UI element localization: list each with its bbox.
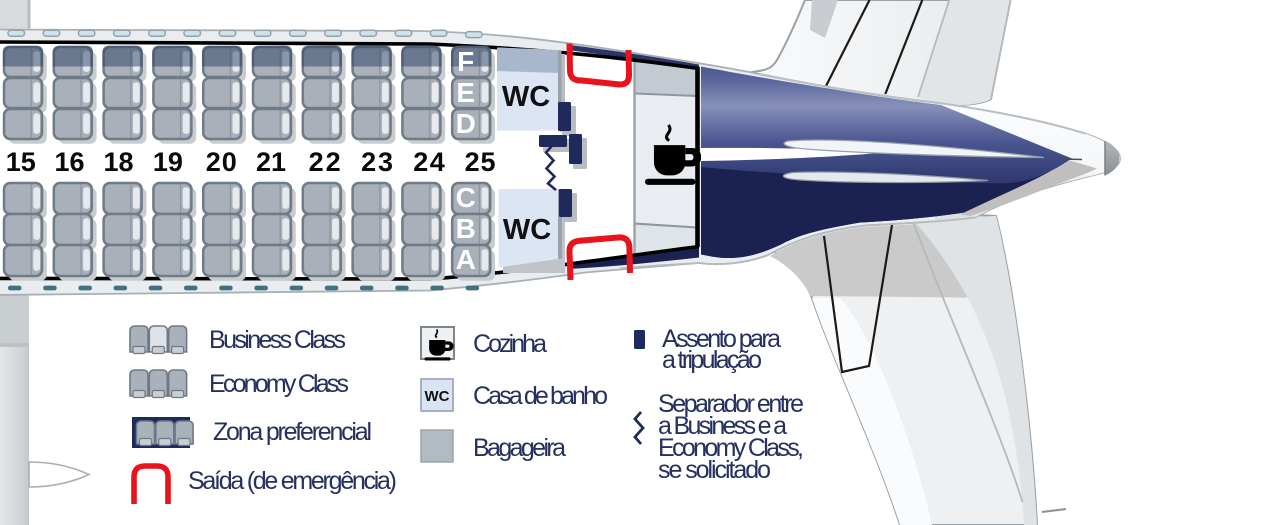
svg-text:A: A xyxy=(456,244,476,275)
svg-text:Casa de banho: Casa de banho xyxy=(473,382,608,410)
svg-text:19: 19 xyxy=(153,147,183,177)
svg-text:C: C xyxy=(456,182,476,213)
svg-text:21: 21 xyxy=(256,147,286,177)
svg-text:20: 20 xyxy=(206,147,237,177)
svg-text:18: 18 xyxy=(103,147,133,177)
svg-text:D: D xyxy=(456,108,476,139)
svg-text:22: 22 xyxy=(309,147,341,177)
svg-text:B: B xyxy=(456,213,476,244)
svg-text:16: 16 xyxy=(54,147,84,177)
svg-text:WC: WC xyxy=(503,214,551,246)
svg-text:Bagageira: Bagageira xyxy=(473,434,566,462)
svg-text:23: 23 xyxy=(361,147,393,177)
svg-text:Saída (de emergência): Saída (de emergência) xyxy=(188,467,397,495)
svg-text:WC: WC xyxy=(502,81,550,113)
svg-text:Cozinha: Cozinha xyxy=(473,330,547,358)
svg-text:24: 24 xyxy=(413,147,445,177)
svg-text:F: F xyxy=(457,46,474,77)
svg-text:Business Class: Business Class xyxy=(209,326,346,354)
svg-text:Zona preferencial: Zona preferencial xyxy=(213,418,372,446)
svg-text:WC: WC xyxy=(425,388,450,405)
svg-text:15: 15 xyxy=(6,147,36,177)
svg-text:E: E xyxy=(456,77,475,108)
svg-text:a tripulação: a tripulação xyxy=(662,346,762,374)
svg-text:Economy Class: Economy Class xyxy=(209,370,349,398)
svg-text:25: 25 xyxy=(465,147,496,177)
svg-text:se solicitado: se solicitado xyxy=(658,456,771,484)
